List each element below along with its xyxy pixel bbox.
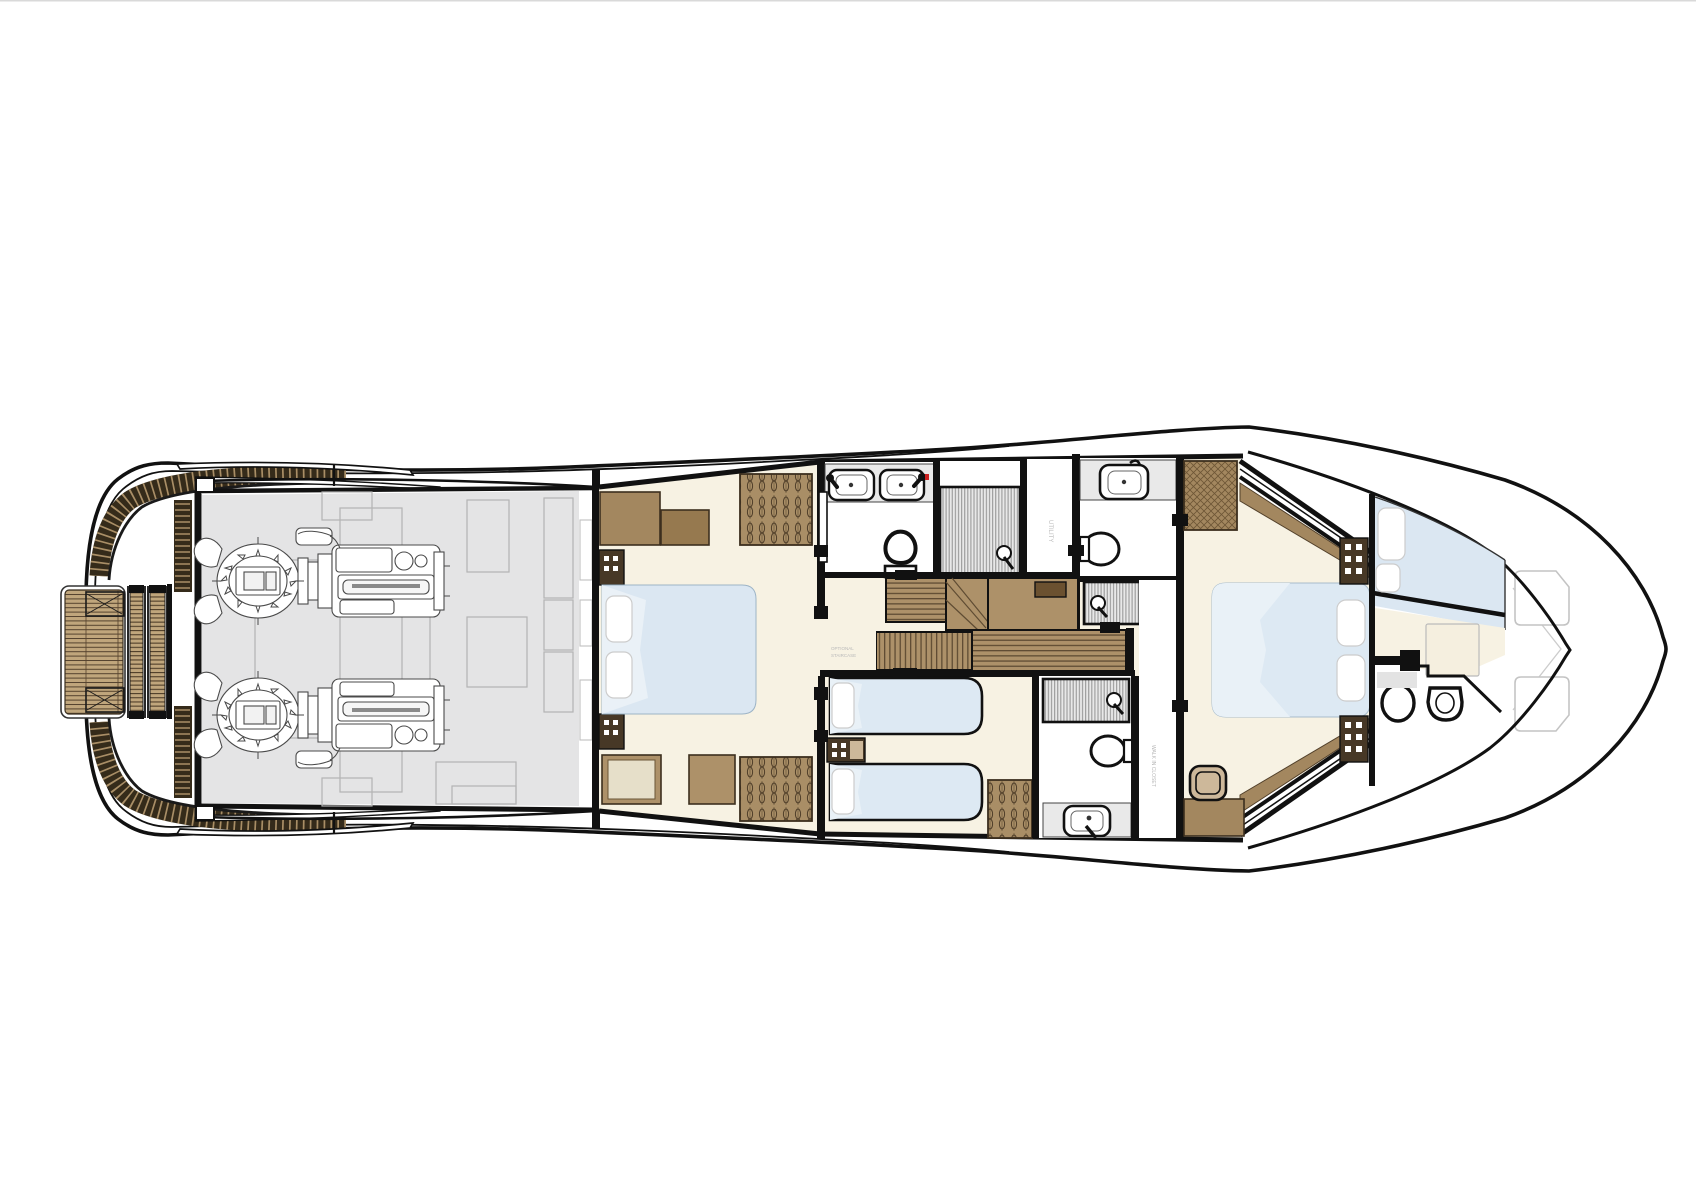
svg-text:OPTIONAL: OPTIONAL [831, 646, 854, 651]
svg-text:UTILITY: UTILITY [1047, 520, 1053, 542]
svg-text:WALK IN CLOSET: WALK IN CLOSET [1150, 745, 1156, 787]
svg-text:STAIRCASE: STAIRCASE [831, 653, 856, 658]
